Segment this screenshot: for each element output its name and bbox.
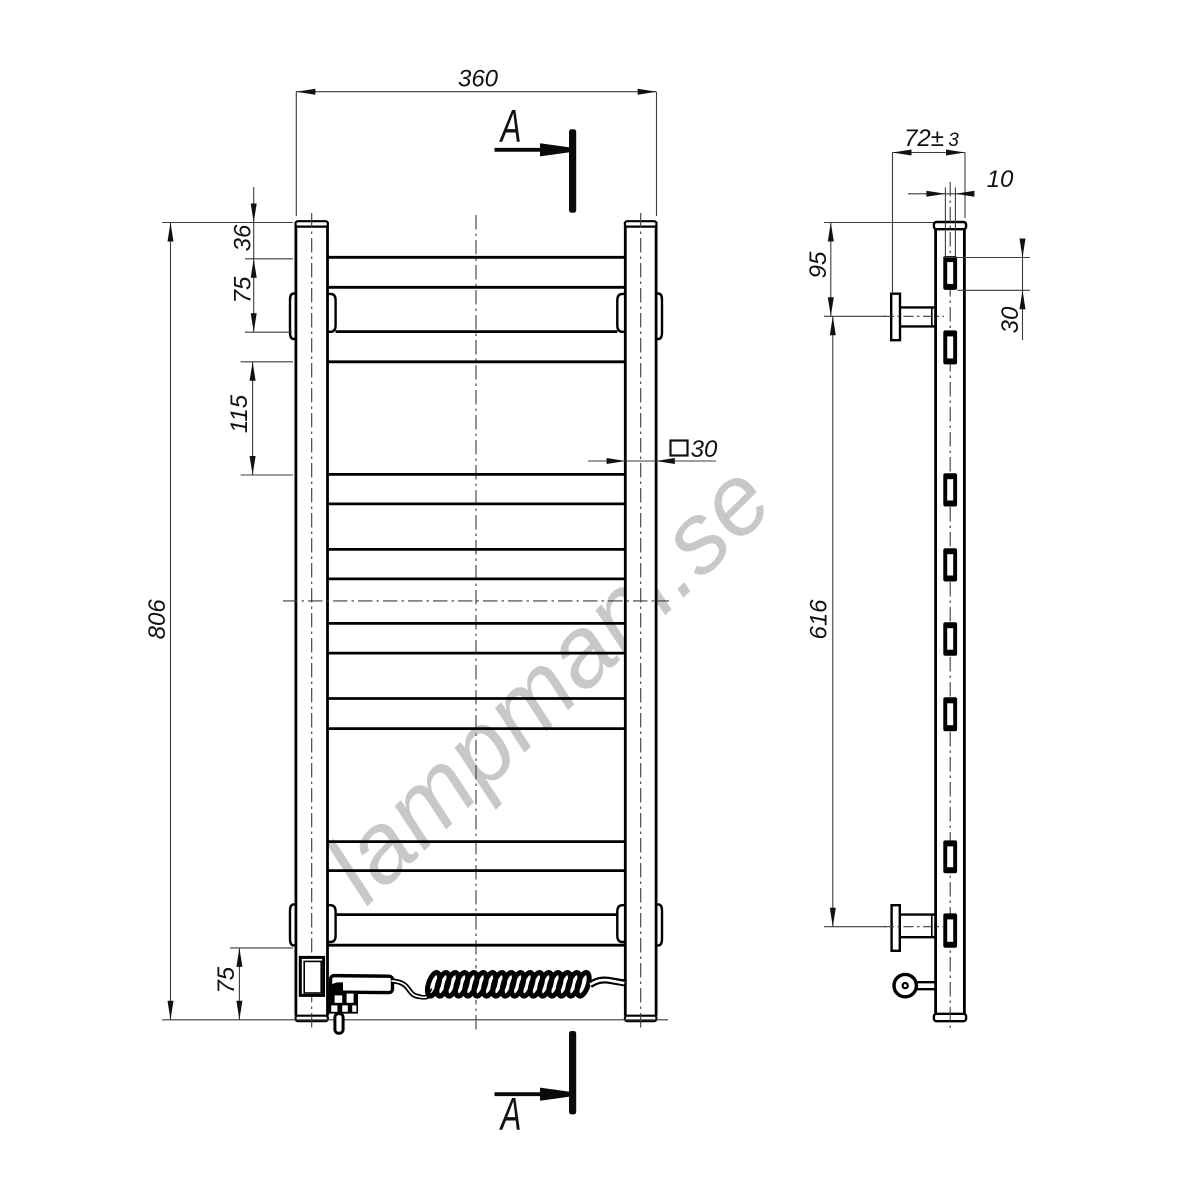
svg-text:30: 30 xyxy=(691,436,718,463)
svg-text:30: 30 xyxy=(997,306,1024,333)
svg-text:115: 115 xyxy=(226,394,253,433)
svg-text:3: 3 xyxy=(948,130,959,151)
svg-text:616: 616 xyxy=(806,599,833,640)
svg-text:72±: 72± xyxy=(904,125,944,152)
svg-text:75: 75 xyxy=(230,276,257,303)
svg-text:95: 95 xyxy=(805,251,832,278)
svg-text:36: 36 xyxy=(230,224,257,251)
svg-text:806: 806 xyxy=(144,599,171,640)
svg-text:A: A xyxy=(499,1089,521,1140)
svg-text:360: 360 xyxy=(458,66,499,93)
svg-text:10: 10 xyxy=(987,166,1014,193)
svg-text:A: A xyxy=(499,101,521,152)
svg-text:75: 75 xyxy=(213,966,240,993)
